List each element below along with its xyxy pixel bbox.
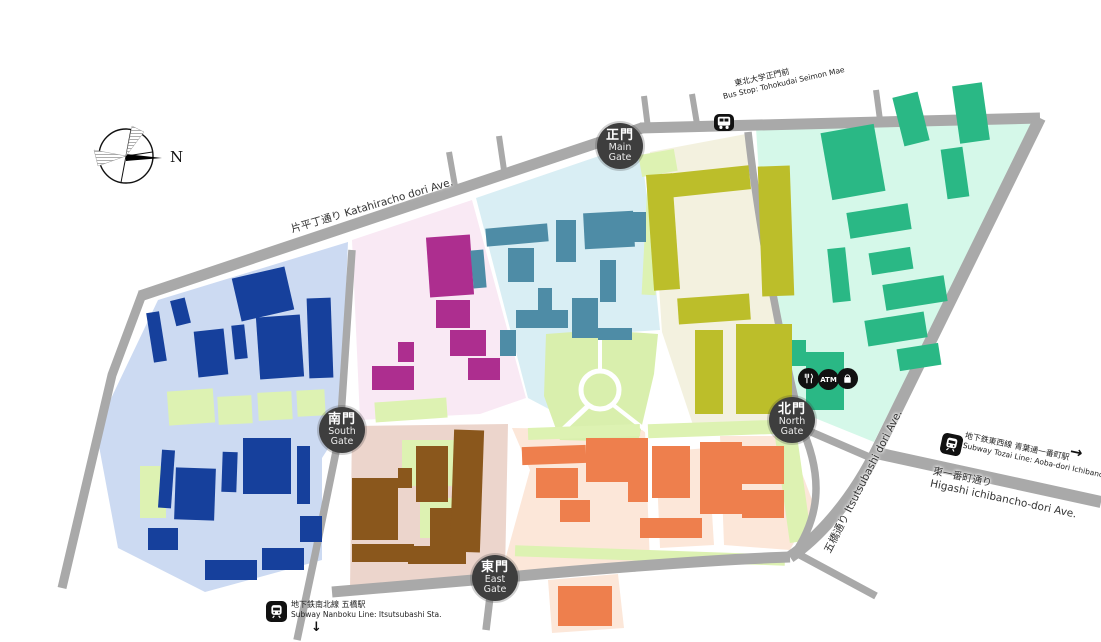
north-gate-jp: 北門 xyxy=(778,403,806,417)
campus-map: N 片平丁通り Katahiracho dori Ave. 五橋通り Itsut… xyxy=(0,0,1101,642)
subway-nanboku-icon[interactable] xyxy=(266,601,287,622)
south-gate-marker[interactable]: 南門 South Gate xyxy=(319,407,365,453)
atm-icon[interactable]: ATM xyxy=(818,369,839,390)
atm-icon-label: ATM xyxy=(820,376,837,384)
shopping-bag-glyph xyxy=(840,371,855,386)
park xyxy=(544,330,658,442)
fork-knife-glyph xyxy=(801,371,816,386)
subway-nanboku-label-jp: 地下鉄南北線 五橋駅 xyxy=(291,600,442,610)
compass-rose xyxy=(94,126,162,183)
east-gate-jp: 東門 xyxy=(481,561,509,575)
subway-nanboku-label: 地下鉄南北線 五橋駅 Subway Nanboku Line: Itsutsub… xyxy=(291,600,442,619)
restaurant-icon[interactable] xyxy=(798,368,819,389)
main-gate-jp: 正門 xyxy=(606,129,634,143)
bus-stop-icon[interactable] xyxy=(714,114,734,131)
bus-glyph xyxy=(715,115,733,130)
subway-tozai-icon[interactable] xyxy=(939,432,964,457)
main-gate-marker[interactable]: 正門 Main Gate xyxy=(597,123,643,169)
south-gate-jp: 南門 xyxy=(328,413,356,427)
train-glyph xyxy=(941,434,961,454)
subway-nanboku-label-en: Subway Nanboku Line: Itsutsubashi Sta. xyxy=(291,610,442,619)
nanboku-direction-arrow: ↓ xyxy=(311,620,322,635)
train-glyph xyxy=(268,603,285,620)
main-gate-en2: Gate xyxy=(609,153,632,163)
east-gate-en2: Gate xyxy=(484,585,507,595)
east-gate-marker[interactable]: 東門 East Gate xyxy=(472,555,518,601)
south-gate-en2: Gate xyxy=(331,437,354,447)
compass-north-label: N xyxy=(170,148,183,166)
map-graphics xyxy=(0,0,1101,642)
shop-icon[interactable] xyxy=(837,368,858,389)
north-gate-en2: Gate xyxy=(781,427,804,437)
north-gate-marker[interactable]: 北門 North Gate xyxy=(769,397,815,443)
